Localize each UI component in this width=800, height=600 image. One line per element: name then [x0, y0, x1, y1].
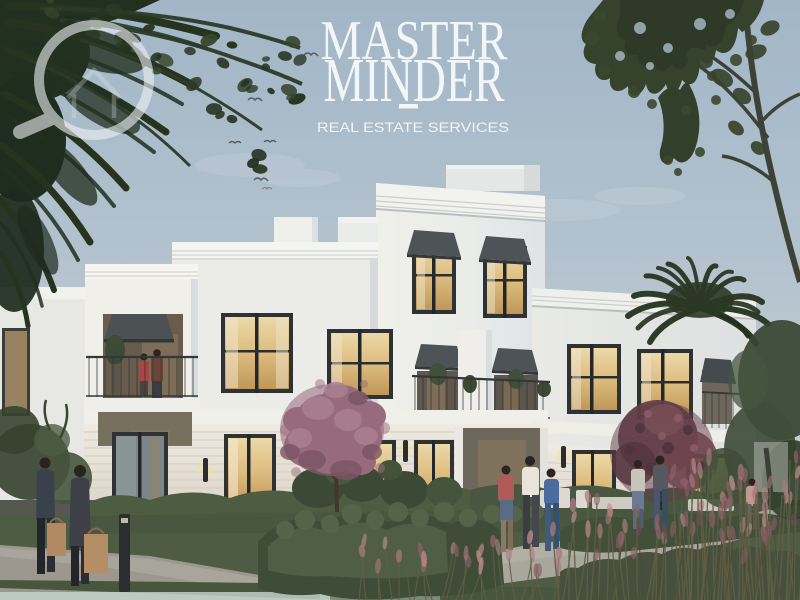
svg-text:REAL ESTATE SERVICES: REAL ESTATE SERVICES [317, 120, 509, 135]
